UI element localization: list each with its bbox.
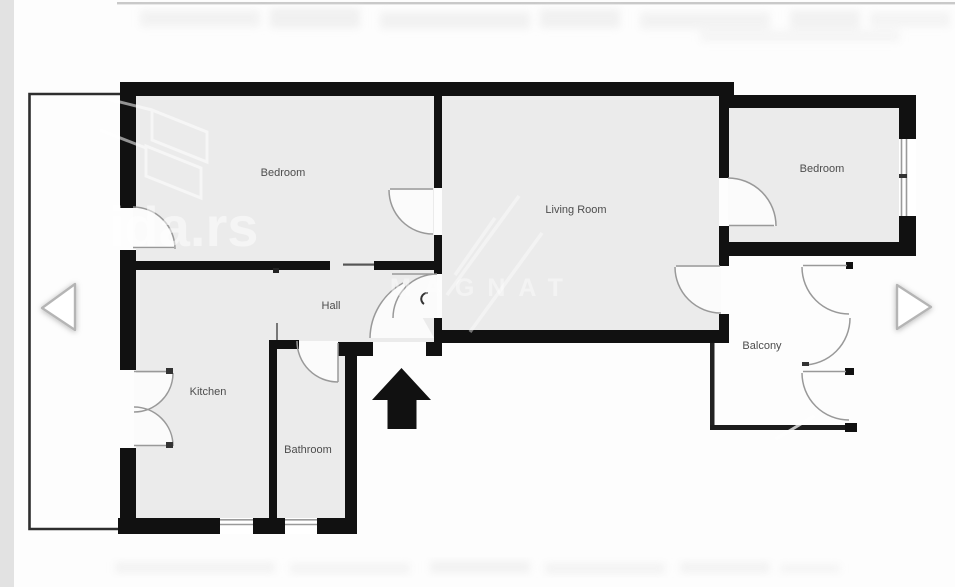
svg-text:Bathroom: Bathroom: [284, 444, 332, 456]
svg-text:Bedroom: Bedroom: [800, 163, 845, 175]
svg-text:Hall: Hall: [322, 300, 341, 312]
svg-text:MAGNAT: MAGNAT: [390, 274, 576, 302]
svg-text:Kitchen: Kitchen: [190, 386, 227, 398]
svg-text:Living Room: Living Room: [545, 204, 606, 216]
svg-text:ida.rs: ida.rs: [109, 195, 258, 258]
svg-text:Bedroom: Bedroom: [261, 167, 306, 179]
svg-text:Balcony: Balcony: [742, 340, 782, 352]
